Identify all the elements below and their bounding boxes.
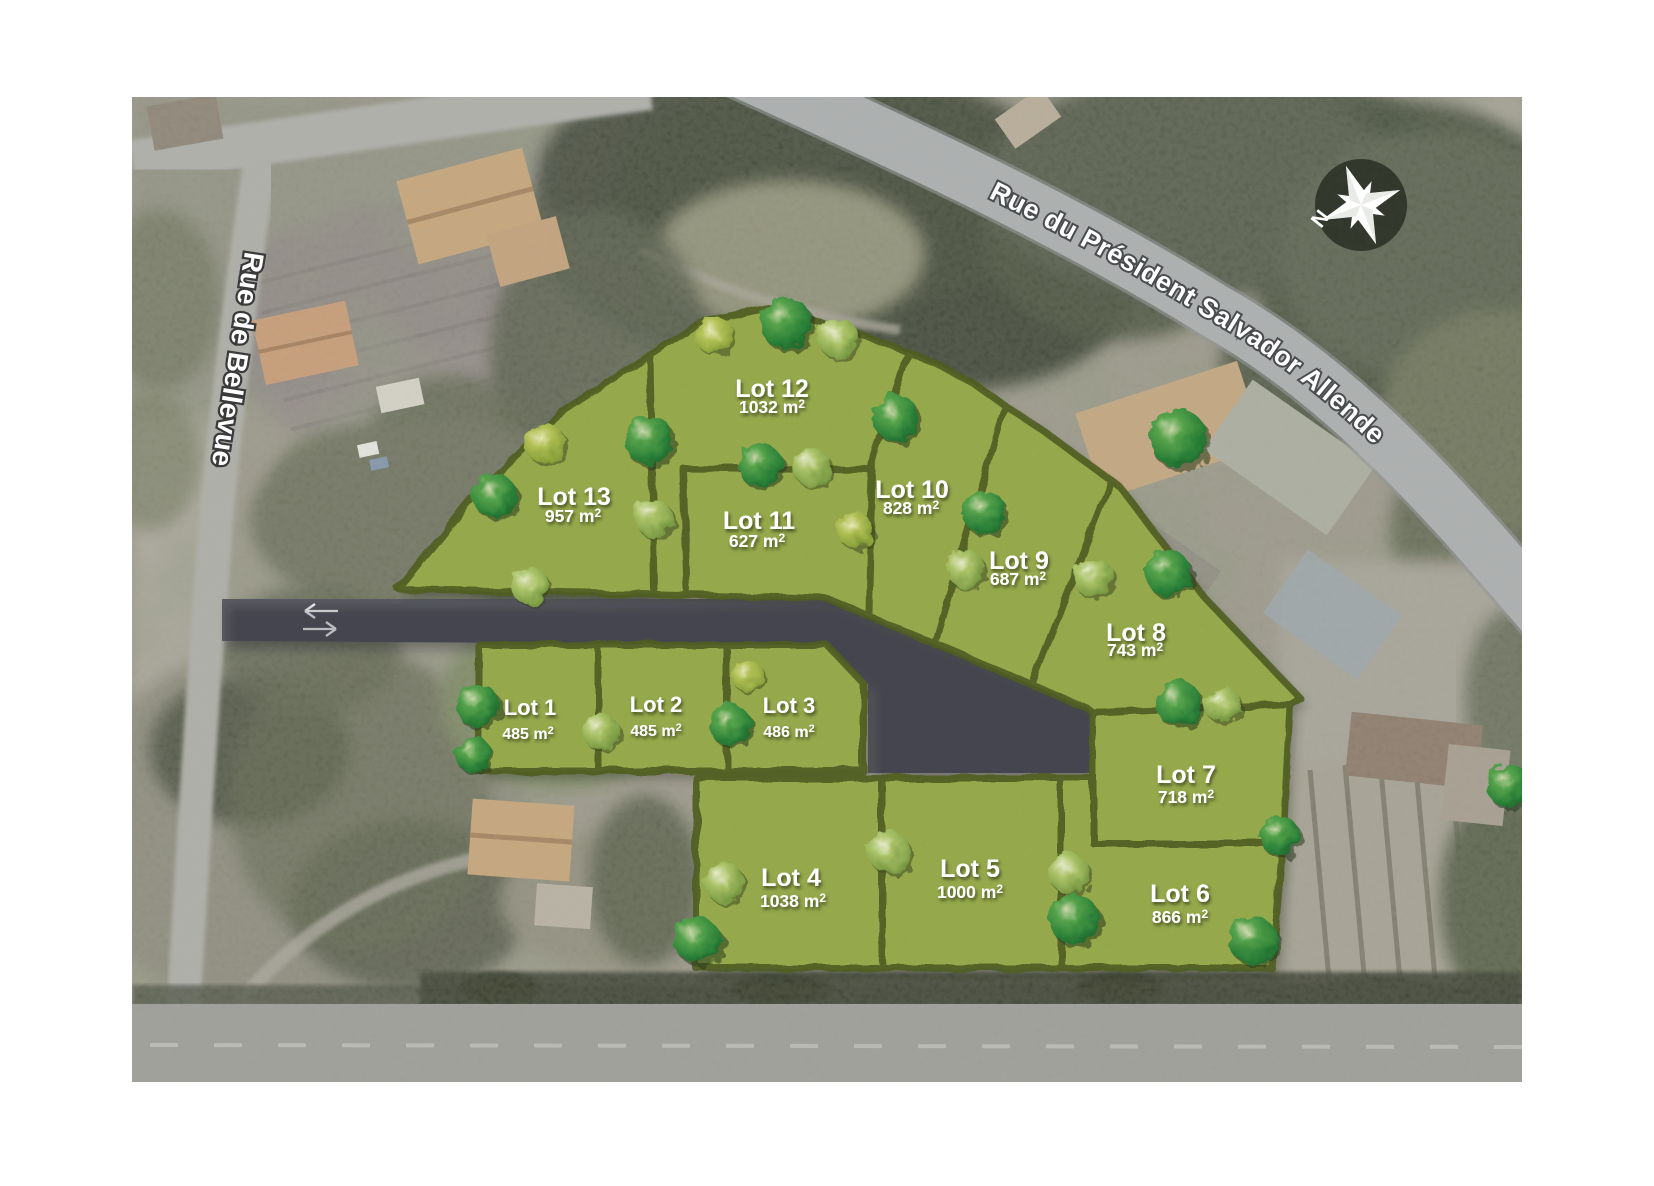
svg-text:486 m2: 486 m2 [763,723,815,741]
svg-text:828 m2: 828 m2 [883,498,940,518]
svg-text:485 m2: 485 m2 [502,725,554,743]
svg-text:Lot 5: Lot 5 [940,855,1000,883]
svg-text:718 m2: 718 m2 [1158,787,1215,807]
svg-text:Lot 6: Lot 6 [1150,880,1210,908]
svg-text:627 m2: 627 m2 [729,531,786,551]
svg-text:1000 m2: 1000 m2 [937,882,1003,902]
svg-text:Lot 7: Lot 7 [1156,761,1216,789]
svg-text:866 m2: 866 m2 [1152,907,1209,927]
svg-text:957 m2: 957 m2 [545,506,602,526]
svg-text:743 m2: 743 m2 [1107,640,1164,660]
svg-text:Lot 3: Lot 3 [763,693,816,718]
svg-text:Lot 1: Lot 1 [504,695,557,720]
svg-text:1038 m2: 1038 m2 [760,891,826,911]
svg-text:1032 m2: 1032 m2 [739,397,805,417]
svg-text:485 m2: 485 m2 [630,722,682,740]
svg-text:Lot 2: Lot 2 [630,692,683,717]
svg-text:Lot 4: Lot 4 [761,864,821,892]
svg-text:687 m2: 687 m2 [990,569,1047,589]
